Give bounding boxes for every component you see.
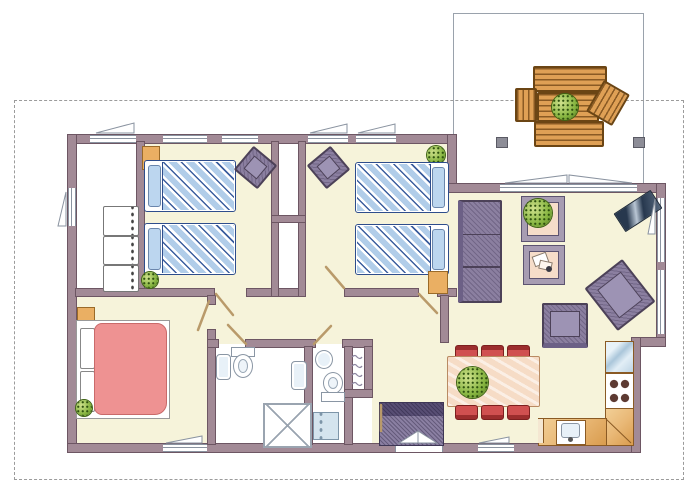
kitchen-sink	[556, 420, 586, 445]
toilet-bowl	[323, 372, 343, 394]
wall-closet-mid	[272, 216, 305, 222]
roof-post-right	[634, 138, 644, 147]
terrace-chair-left	[515, 88, 537, 122]
wall-left	[68, 135, 76, 452]
terrace-bench-bottom	[534, 121, 604, 147]
sliding-door-terrace	[500, 184, 637, 192]
mattress	[162, 225, 234, 273]
window-hall-left	[68, 188, 76, 226]
wall-master-divider	[208, 330, 215, 444]
toilet-bowl-inner	[328, 377, 338, 389]
bedroom2-nightstand	[428, 271, 448, 294]
master-plant	[76, 400, 92, 416]
wall-master-divider-top	[208, 296, 215, 304]
wall-linen-closet-bottom	[345, 390, 372, 397]
window-bedroom2-top-b	[356, 135, 396, 143]
window-living-right-b	[657, 270, 665, 334]
dining-plant	[457, 367, 488, 398]
faucet	[568, 437, 573, 442]
bedroom1-plant	[142, 272, 158, 288]
bath1-washbasin-left	[216, 354, 231, 380]
window-master-bottom	[163, 444, 207, 452]
floor-plan	[0, 0, 700, 500]
exterior-cutout	[640, 346, 666, 444]
floor-closet-bottom	[278, 222, 299, 296]
bath1-toilet	[231, 347, 255, 379]
armchair-square	[542, 303, 588, 348]
sink-basin	[561, 423, 580, 438]
sofa-cushion-line	[463, 266, 500, 268]
dresser-1	[103, 206, 139, 236]
window-hall-top	[90, 135, 136, 143]
bath1-washbasin-right	[291, 361, 307, 390]
sofa-cushion-line	[463, 234, 500, 236]
bedroom1-bed-a	[144, 160, 236, 212]
window-bedroom2-top-a	[308, 135, 348, 143]
terrace-plant	[552, 94, 578, 120]
dresser-3	[103, 265, 139, 292]
bath2-washbasin	[315, 350, 333, 369]
floor-closet-top	[278, 143, 299, 216]
wall-bath-top-a	[208, 340, 218, 347]
counter-end-cap	[538, 419, 544, 443]
roof-post-left	[497, 138, 507, 147]
living-plant	[524, 199, 552, 227]
bedroom2-bed-b	[355, 224, 449, 275]
corner-counter	[605, 408, 634, 446]
bedroom2-bed-a	[355, 162, 449, 213]
window-bedroom1-top-b	[222, 135, 258, 143]
mattress	[357, 226, 431, 273]
stove	[605, 373, 634, 410]
mattress	[162, 162, 234, 210]
window-dining-bottom	[478, 444, 514, 452]
wall-bath-top-b	[246, 340, 315, 347]
wall-bath-top-c	[343, 340, 372, 347]
chair-cushion	[550, 311, 580, 337]
bath1-shower	[263, 403, 312, 448]
dresser-2	[103, 236, 139, 265]
chair-cushion	[244, 156, 268, 180]
master-blanket	[94, 323, 167, 415]
wall-bedrooms-bottom-c	[345, 289, 418, 296]
pillow	[148, 228, 161, 270]
terrace-bench-top	[533, 66, 607, 92]
bedroom1-bed-b	[144, 223, 236, 275]
chair-cushion	[597, 272, 643, 319]
dining-chair	[481, 405, 504, 420]
mattress	[357, 164, 431, 211]
toilet-bowl-inner	[238, 359, 248, 373]
entry-doormat	[379, 402, 444, 446]
cup	[546, 266, 552, 272]
window-bedroom1-top-a	[163, 135, 207, 143]
washing-machine	[313, 412, 339, 440]
pillow	[432, 229, 445, 270]
toilet-bowl	[233, 354, 253, 378]
chair-cushion	[317, 156, 341, 180]
toilet-tank	[321, 392, 345, 402]
pillow	[432, 167, 445, 208]
dining-chair	[455, 405, 478, 420]
master-pillow-top	[80, 328, 95, 369]
wall-bedrooms-bottom-a	[76, 289, 214, 296]
side-table-books	[524, 246, 564, 284]
bath2-toilet	[321, 372, 345, 402]
fridge	[605, 341, 634, 373]
dining-chair	[507, 405, 530, 420]
sofa	[458, 200, 502, 303]
pillow	[148, 165, 161, 207]
wall-entry-divider	[441, 296, 448, 342]
